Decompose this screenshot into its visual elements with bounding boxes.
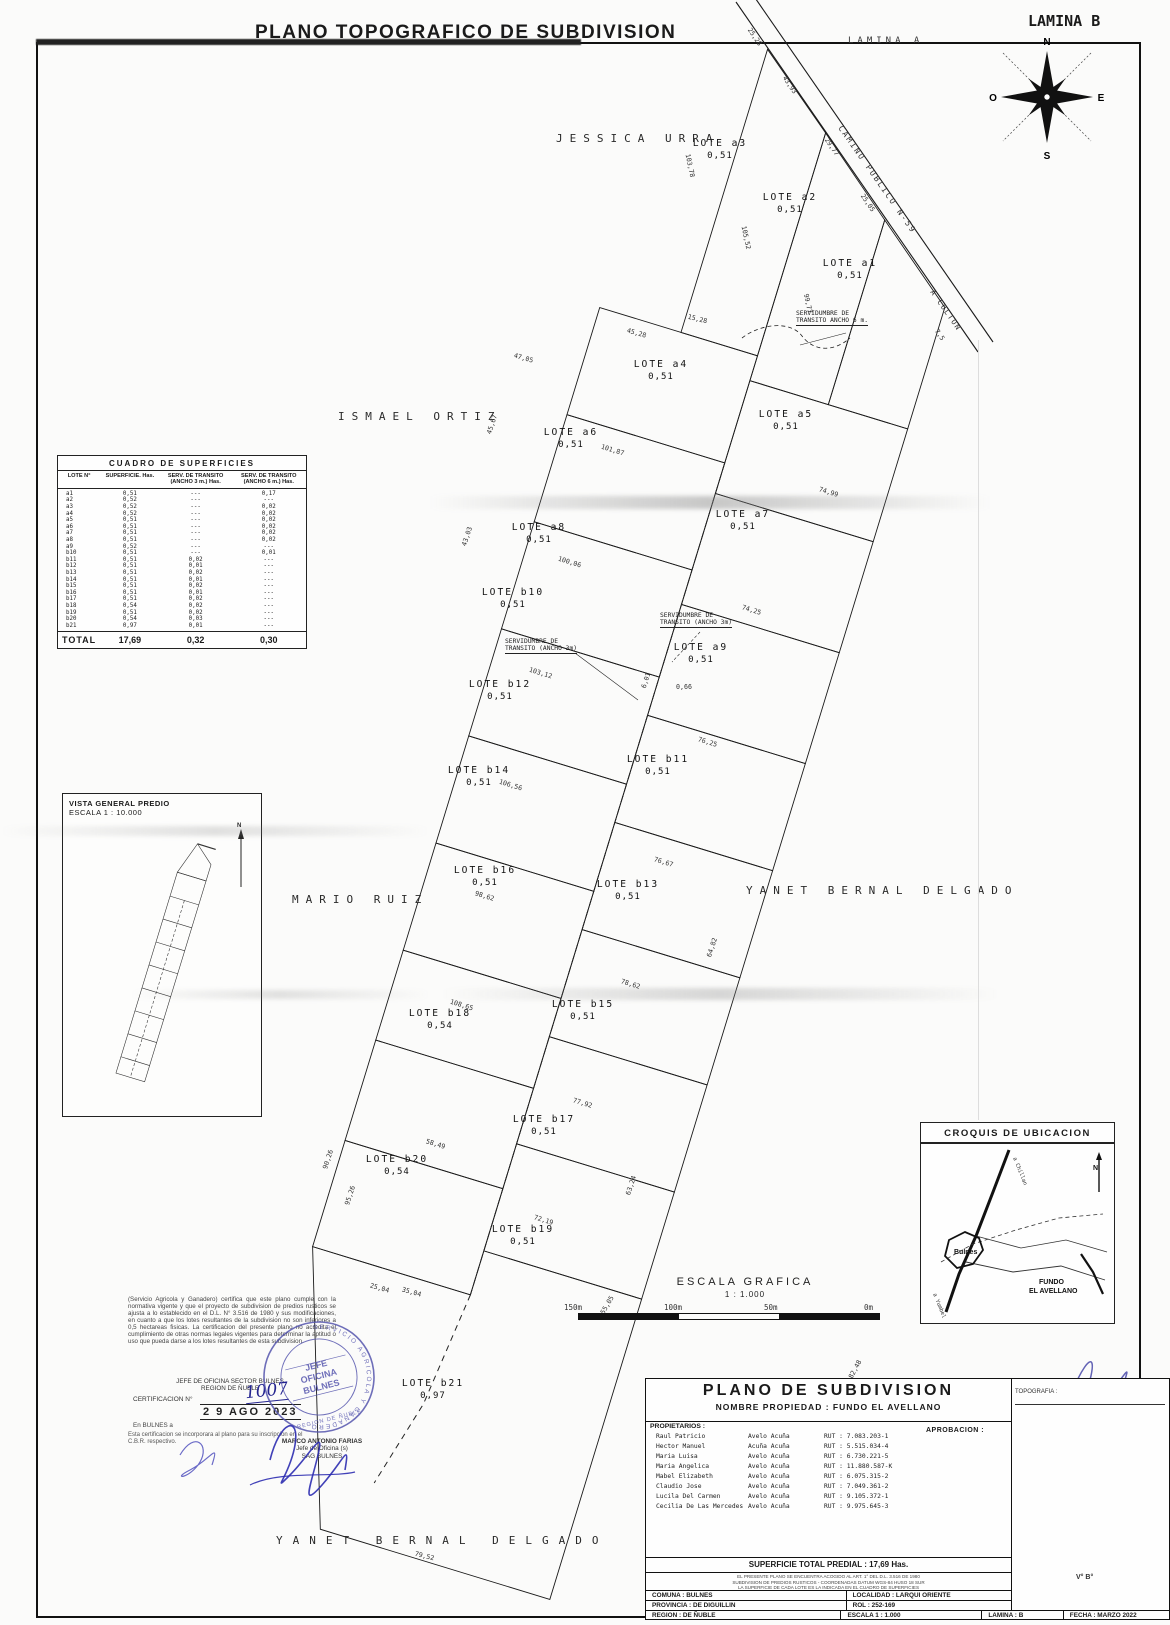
svg-text:a Yumbel: a Yumbel <box>931 1293 946 1319</box>
scan-smudge <box>440 988 1000 1000</box>
table-row: b130,510,02--- <box>58 570 306 577</box>
certification-number-label: CERTIFICACION N° <box>133 1396 193 1403</box>
lot-area: 0,51 <box>707 151 733 161</box>
table-row: b150,510,02--- <box>58 583 306 590</box>
scan-fold-line <box>978 340 979 1120</box>
dimension: 43,03 <box>460 526 474 547</box>
table-row: b210,970,01--- <box>58 623 306 630</box>
dimension: 25,04 <box>369 1281 390 1294</box>
graphic-scale-bar: 150m100m50m0m <box>560 1303 930 1319</box>
table-header: SERV. DE TRANSITO (ANCHO 3 m.) Has. <box>160 471 232 488</box>
lot-label: LOTE a5 <box>759 409 813 420</box>
scan-smudge <box>130 990 430 999</box>
sag-signer: MARCO ANTONIO FARIAS Jefe de Oficina (s)… <box>252 1438 392 1460</box>
neighbor-jessica-urra: JESSICA URRA <box>556 132 719 145</box>
escala-cell: ESCALA 1 : 1.000 <box>840 1611 981 1620</box>
lot-label: LOTE b18 <box>409 1008 471 1019</box>
lot-area: 0,51 <box>688 655 714 665</box>
compass-rose-icon: N S E O <box>989 37 1105 162</box>
table-row: a80,51---0,02 <box>58 537 306 544</box>
surfaces-table-body: a10,51---0,17a20,52------a30,52---0,02a4… <box>58 489 306 631</box>
svg-text:FUNDO: FUNDO <box>1039 1279 1064 1286</box>
dimension: 25,05 <box>859 192 877 213</box>
lot-area: 0,51 <box>773 422 799 432</box>
table-row: a40,52---0,02 <box>58 511 306 518</box>
lot-area: 0,51 <box>510 1237 536 1247</box>
table-row: b170,510,02--- <box>58 596 306 603</box>
owner-row: Maria LuisaAvelo AcuñaRUT : 6.730.221-5 <box>646 1451 1011 1461</box>
table-row: b160,510,01--- <box>58 590 306 597</box>
lot-area: 0,54 <box>427 1021 453 1031</box>
svg-text:O: O <box>989 93 997 104</box>
owner-row: Claudio JoseAvelo AcuñaRUT : 7.049.361-2 <box>646 1481 1011 1491</box>
dimension: 79,52 <box>414 1550 435 1563</box>
lot-area: 0,51 <box>531 1127 557 1137</box>
scale-bar <box>578 1313 880 1320</box>
graphic-scale-title: ESCALA GRAFICA <box>560 1276 930 1288</box>
property-name: NOMBRE PROPIEDAD : FUNDO EL AVELLANO <box>646 1402 1011 1412</box>
lot-label: LOTE b21 <box>402 1378 464 1389</box>
svg-text:S: S <box>1044 151 1051 162</box>
dimension: 6,01 <box>640 672 653 690</box>
dimension: 103,78 <box>684 153 697 178</box>
servidumbre-6m-line <box>742 326 850 349</box>
lot-label: LOTE b12 <box>469 679 531 690</box>
svg-text:N: N <box>1093 1165 1098 1172</box>
dimension: 95,26 <box>343 1185 357 1206</box>
location-sketch-title: CROQUIS DE UBICACION <box>921 1123 1114 1144</box>
dimension: 64,82 <box>705 937 719 958</box>
lot-area: 0,51 <box>777 205 803 215</box>
location-sketch-map: Bulnes FUNDO EL AVELLANO a Chillan a Yum… <box>921 1144 1111 1319</box>
table-row: b120,510,01--- <box>58 563 306 570</box>
lot-label: LOTE b13 <box>597 879 659 890</box>
dimension: 25,28 <box>746 26 764 47</box>
lot-label: LOTE a6 <box>544 427 598 438</box>
owner-row: Maria AngelicaAvelo AcuñaRUT : 11.880.58… <box>646 1461 1011 1471</box>
dimension: 29,77 <box>823 136 841 157</box>
scan-smudge <box>0 826 430 836</box>
lot-label: LOTE b20 <box>366 1154 428 1165</box>
servidumbre-line <box>374 452 725 1494</box>
dimension: 101,87 <box>600 443 625 458</box>
dimension-texts: 25,2843,9329,7725,057,5103,78105,5299,77… <box>321 26 946 1562</box>
approval-label: APROBACION : <box>926 1427 984 1434</box>
neighbor-mario-ruiz: MARIO RUIZ <box>292 893 428 906</box>
dimension: 76,67 <box>653 855 674 868</box>
certification-office: JEFE DE OFICINA SECTOR BULNESREGION DE Ñ… <box>140 1378 320 1392</box>
table-row: a10,51---0,17 <box>58 491 306 498</box>
road-name: CAMINO PUBLICO N-59 <box>836 124 918 235</box>
scale-tick: 50m <box>764 1303 778 1312</box>
lot-label: LOTE b15 <box>552 999 614 1010</box>
region-row: REGION : DE ÑUBLE ESCALA 1 : 1.000 LAMIN… <box>646 1610 1169 1620</box>
lot-label: LOTE b11 <box>627 754 689 765</box>
dimension: 103,12 <box>528 666 553 681</box>
lot-label: LOTE a1 <box>823 258 877 269</box>
date-stamp: 2 9 AGO 2023 <box>200 1404 301 1420</box>
servidumbre-3m-note-left: SERVIDUMBRE DETRANSITO (ANCHO 3m) <box>505 638 577 654</box>
lot-area: 0,51 <box>500 600 526 610</box>
lot-area: 0,51 <box>837 271 863 281</box>
plan-title: PLANO DE SUBDIVISION <box>646 1382 1011 1400</box>
dimension: 98,62 <box>474 889 495 902</box>
dimension: 63,24 <box>624 1175 638 1196</box>
title-block-header: PLANO DE SUBDIVISION NOMBRE PROPIEDAD : … <box>646 1379 1012 1422</box>
surfaces-table: CUADRO DE SUPERFICIES LOTE N°SUPERFICIE.… <box>57 455 307 649</box>
scale-tick: 150m <box>564 1303 582 1312</box>
dimension: 15,28 <box>687 313 708 326</box>
region-cell: REGION : DE ÑUBLE <box>646 1611 840 1620</box>
lot-labels: LOTE a10,51LOTE a20,51LOTE a30,51LOTE a4… <box>366 138 877 1401</box>
road-dest: A COLTON <box>928 288 963 333</box>
certification-place: En BULNES a <box>133 1422 173 1429</box>
dimension: 74,25 <box>741 603 762 616</box>
dimension: 90,26 <box>321 1149 335 1170</box>
lot-area: 0,51 <box>570 1012 596 1022</box>
table-row: b140,510,01--- <box>58 577 306 584</box>
table-row: a60,51---0,02 <box>58 524 306 531</box>
svg-text:N: N <box>1043 37 1050 48</box>
lot-label: LOTE b16 <box>454 865 516 876</box>
lot-label: LOTE b17 <box>513 1114 575 1125</box>
owner-row: Mabel ElizabethAvelo AcuñaRUT : 6.075.31… <box>646 1471 1011 1481</box>
table-row: a30,52---0,02 <box>58 504 306 511</box>
vista-general-minimap: N <box>63 817 259 1112</box>
lot-area: 0,51 <box>648 372 674 382</box>
dimension: 106,56 <box>498 778 523 793</box>
location-sketch-box: CROQUIS DE UBICACION Bulnes FUNDO EL AVE… <box>920 1122 1115 1324</box>
svg-text:EL AVELLANO: EL AVELLANO <box>1029 1288 1078 1295</box>
dimension: 43,93 <box>781 74 799 95</box>
total-surface: SUPERFICIE TOTAL PREDIAL : 17,69 Has. <box>646 1557 1012 1573</box>
title-block: PLANO DE SUBDIVISION NOMBRE PROPIEDAD : … <box>645 1378 1170 1620</box>
table-row: a20,52------ <box>58 497 306 504</box>
table-header: SERV. DE TRANSITO (ANCHO 6 m.) Has. <box>232 471 306 488</box>
owner-row: Cecilia De Las MercedesAvelo AcuñaRUT : … <box>646 1501 1011 1511</box>
surfaces-table-title: CUADRO DE SUPERFICIES <box>58 456 306 471</box>
table-row: a70,51---0,02 <box>58 530 306 537</box>
lamina-cell: LAMINA : B <box>981 1611 1062 1620</box>
lot-area: 0,51 <box>558 440 584 450</box>
table-row: b190,510,02--- <box>58 610 306 617</box>
scale-tick: 100m <box>664 1303 682 1312</box>
fecha-cell: FECHA : MARZO 2022 <box>1063 1611 1169 1620</box>
lot-area: 0,51 <box>466 778 492 788</box>
table-row: b180,540,02--- <box>58 603 306 610</box>
svg-text:a Chillan: a Chillan <box>1011 1157 1028 1187</box>
graphic-scale: ESCALA GRAFICA 1 : 1.000 150m100m50m0m <box>560 1276 930 1319</box>
lot-label: LOTE b10 <box>482 587 544 598</box>
lot-area: 0,51 <box>615 892 641 902</box>
dimension: 105,52 <box>740 225 753 250</box>
vista-general-box: VISTA GENERAL PREDIOESCALA 1 : 10.000 N <box>62 793 262 1117</box>
sheet: PLANO TOPOGRAFICO DE SUBDIVISION LAMINA … <box>0 0 1170 1625</box>
graphic-scale-ratio: 1 : 1.000 <box>560 1290 930 1299</box>
lot-area: 0,51 <box>645 767 671 777</box>
owner-row: Lucila Del CarmenAvelo AcuñaRUT : 9.105.… <box>646 1491 1011 1501</box>
table-row: a50,51---0,02 <box>58 517 306 524</box>
dimension: 76,25 <box>697 735 718 748</box>
neighbor-yanet-south: YANET BERNAL DELGADO <box>276 1534 608 1547</box>
servidumbre-3m-note-right: SERVIDUMBRE DETRANSITO (ANCHO 3m) <box>660 612 732 628</box>
leader-line-2 <box>575 653 638 700</box>
dimension: 100,06 <box>557 555 582 570</box>
dimension: 0,66 <box>676 683 692 691</box>
lot-label: LOTE a2 <box>763 192 817 203</box>
svg-text:E: E <box>1098 93 1105 104</box>
lot-label: LOTE a8 <box>512 522 566 533</box>
table-row: b100,51---0,01 <box>58 550 306 557</box>
vista-general-title: VISTA GENERAL PREDIOESCALA 1 : 10.000 <box>63 794 261 817</box>
table-row: a90,52------ <box>58 544 306 551</box>
svg-text:Bulnes: Bulnes <box>954 1249 977 1256</box>
owner-row: Hector ManuelAcuña AcuñaRUT : 5.515.034-… <box>646 1441 1011 1451</box>
lot-label: LOTE b14 <box>448 765 510 776</box>
dimension: 77,92 <box>572 1096 593 1109</box>
neighbor-ismael-ortiz: ISMAEL ORTIZ <box>338 410 501 423</box>
lot-label: LOTE b19 <box>492 1224 554 1235</box>
surfaces-table-total: TOTAL17,690,320,30 <box>58 631 306 648</box>
dimension: 58,49 <box>425 1137 446 1150</box>
vb-label: V° B° <box>1076 1574 1093 1581</box>
dimension: 45,28 <box>626 326 647 339</box>
lot-area: 0,54 <box>384 1167 410 1177</box>
certification-number-handwritten: 1007 <box>244 1379 289 1404</box>
leader-line-1 <box>800 333 846 345</box>
table-row: b110,510,02--- <box>58 557 306 564</box>
fine-print: EL PRESENTE PLANO SE ENCUENTRA ACOGIDO A… <box>646 1572 1012 1592</box>
lot-label: LOTE a4 <box>634 359 688 370</box>
lot-area: 0,51 <box>487 692 513 702</box>
table-header: SUPERFICIE. Has. <box>100 471 160 488</box>
lot-area: 0,51 <box>472 878 498 888</box>
servidumbre-6m-note: SERVIDUMBRE DETRANSITO ANCHO 6 m. <box>796 310 868 326</box>
surfaces-table-headers: LOTE N°SUPERFICIE. Has.SERV. DE TRANSITO… <box>58 471 306 489</box>
certification-paragraph: (Servicio Agricola y Ganadero) certifica… <box>128 1296 336 1345</box>
lot-label: LOTE a9 <box>674 642 728 653</box>
lot-area: 0,51 <box>526 535 552 545</box>
lot-label: LOTE a7 <box>716 509 770 520</box>
dimension: 47,05 <box>513 351 534 364</box>
owners-section: PROPIETARIOS : Raul PatricioAvelo AcuñaR… <box>646 1421 1012 1557</box>
lot-area: 0,97 <box>420 1391 446 1401</box>
lot-area: 0,51 <box>730 522 756 532</box>
topography-cell: TOPOGRAFIA : <box>1011 1379 1169 1421</box>
dimension: 35,04 <box>401 1285 422 1298</box>
scan-smudge <box>430 496 990 509</box>
table-header: LOTE N° <box>58 471 100 488</box>
scale-tick: 0m <box>864 1303 873 1312</box>
table-row: b200,540,03--- <box>58 616 306 623</box>
